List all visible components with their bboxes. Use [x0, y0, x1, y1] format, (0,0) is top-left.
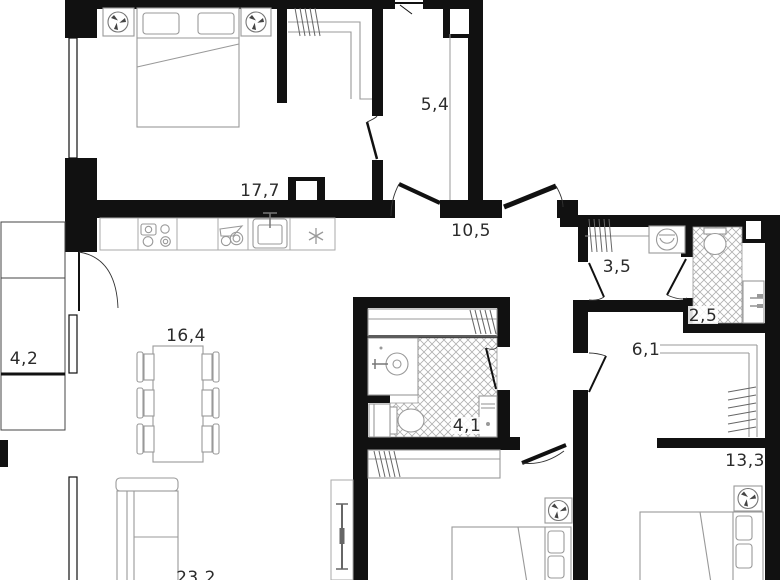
pillow	[548, 531, 564, 553]
bedroom-1-door	[367, 116, 377, 159]
pillow	[143, 13, 179, 34]
balcony-door	[79, 252, 118, 311]
entrance-door	[504, 186, 563, 207]
room-label-kitchen-living: 23,2	[176, 568, 216, 580]
lamp-icon	[246, 12, 266, 32]
window-living-lower	[69, 477, 77, 580]
corridor-door	[589, 353, 606, 392]
toilet	[704, 228, 726, 255]
floor-plan-page: 17,7 5,4 10,5 3,5 2,5 6,1 13,3 16,4 4,2 …	[0, 0, 780, 580]
window-bedroom-1	[69, 38, 77, 158]
bedroom-2-furniture	[640, 486, 763, 580]
bedroom-middle-furniture	[452, 498, 572, 580]
small-sink	[743, 281, 764, 323]
living-furniture	[116, 478, 353, 580]
pillow	[736, 516, 752, 540]
pillow	[198, 13, 234, 34]
kitchen-counter	[100, 213, 335, 250]
dishwasher-icon	[220, 226, 243, 246]
double-bed	[640, 512, 763, 580]
pillow	[548, 556, 564, 578]
floor-plan-canvas: 17,7 5,4 10,5 3,5 2,5 6,1 13,3 16,4 4,2 …	[0, 0, 780, 580]
toilet	[390, 407, 424, 434]
balcony-outline	[1, 222, 65, 430]
stove-icon	[141, 224, 170, 246]
lamp-icon	[549, 501, 569, 521]
fridge-snowflake-icon	[309, 228, 323, 244]
lamp-icon	[738, 489, 758, 509]
hanging-rail-icon	[728, 387, 756, 432]
window-living-upper	[69, 315, 77, 373]
room-label-bedroom-2: 13,3	[725, 451, 765, 471]
room-label-wc: 2,5	[689, 306, 718, 326]
bath-cabinet	[369, 404, 390, 437]
walk-in-closet	[288, 8, 372, 99]
dining-set	[137, 346, 219, 462]
corridor-wardrobe	[660, 345, 757, 437]
room-label-corridor: 6,1	[632, 340, 661, 360]
dining-table	[153, 346, 203, 462]
wc-door	[667, 259, 687, 299]
room-label-pantry: 5,4	[421, 95, 450, 115]
pantry-door	[391, 184, 440, 216]
tv-icon	[340, 528, 345, 544]
hanging-rail-icon	[470, 310, 496, 334]
closet-above-bathroom	[368, 309, 497, 336]
room-label-hallway: 10,5	[451, 221, 491, 241]
room-label-balcony: 4,2	[10, 349, 39, 369]
room-label-bedroom-1: 17,7	[240, 181, 280, 201]
room-label-bathroom: 4,1	[453, 416, 482, 436]
double-bed	[452, 527, 571, 580]
sofa	[116, 478, 178, 580]
tv-unit	[331, 480, 353, 580]
hanging-rail-icon	[374, 451, 400, 477]
lamp-icon	[108, 12, 128, 32]
washing-machine-icon	[649, 226, 685, 253]
vanity-sink	[368, 338, 418, 395]
room-label-laundry: 3,5	[603, 257, 632, 277]
room-label-dining: 16,4	[166, 326, 206, 346]
double-bed	[137, 8, 239, 127]
windows	[69, 38, 77, 580]
pillow	[736, 544, 752, 568]
bedroom-2-door	[522, 445, 566, 464]
bedroom-1-furniture	[103, 8, 372, 127]
closet-below-bathroom	[368, 450, 500, 478]
